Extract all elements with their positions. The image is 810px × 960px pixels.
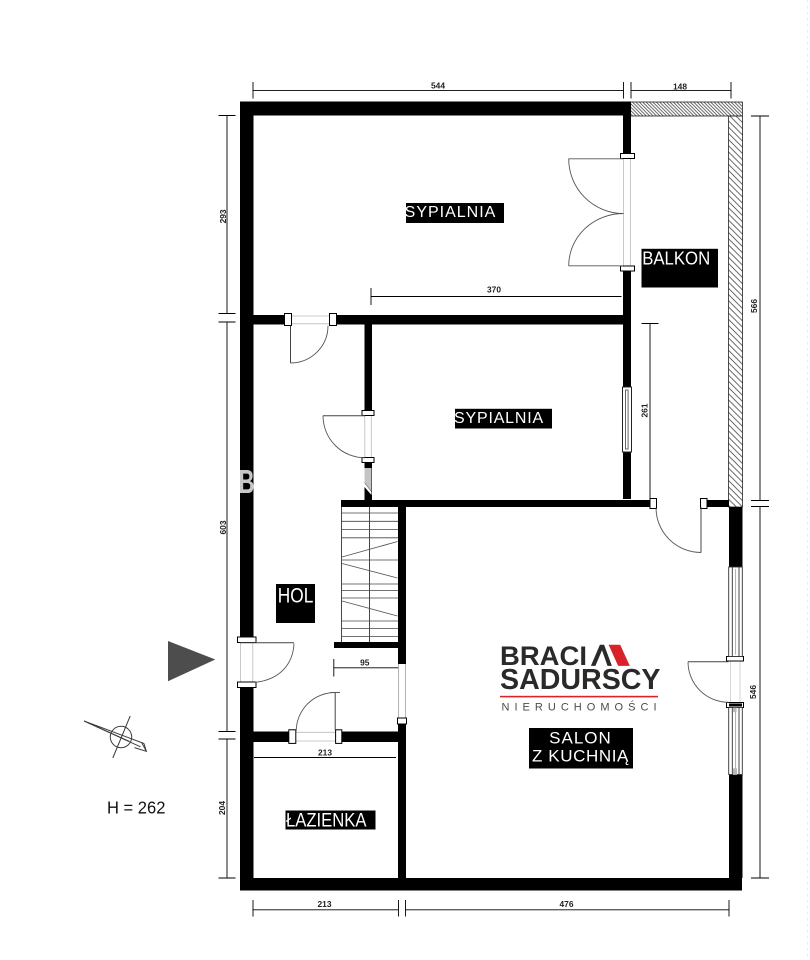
svg-text:546: 546 xyxy=(748,685,758,699)
svg-text:SYPIALNIA: SYPIALNIA xyxy=(405,204,497,221)
svg-text:293: 293 xyxy=(218,209,228,223)
svg-text:NIERUCHOMOŚCI: NIERUCHOMOŚCI xyxy=(502,701,657,714)
svg-text:SYPIALNIA: SYPIALNIA xyxy=(454,410,544,427)
svg-text:ŁAZIENKA: ŁAZIENKA xyxy=(286,810,367,831)
svg-text:261: 261 xyxy=(640,403,650,417)
svg-text:148: 148 xyxy=(673,81,687,91)
svg-text:213: 213 xyxy=(318,899,332,909)
svg-text:204: 204 xyxy=(217,801,227,815)
svg-text:B: B xyxy=(239,463,255,500)
svg-text:603: 603 xyxy=(218,520,228,534)
svg-text:544: 544 xyxy=(431,81,445,91)
svg-text:SADURSCY: SADURSCY xyxy=(500,664,661,696)
svg-text:SALON: SALON xyxy=(549,729,612,748)
svg-text:213: 213 xyxy=(318,747,332,757)
svg-text:BALKON: BALKON xyxy=(642,247,710,268)
svg-text:370: 370 xyxy=(487,284,501,294)
svg-text:H = 262: H = 262 xyxy=(107,797,165,818)
svg-text:95: 95 xyxy=(360,657,370,667)
svg-text:476: 476 xyxy=(560,899,574,909)
svg-text:HOL: HOL xyxy=(278,584,314,607)
svg-text:566: 566 xyxy=(749,299,759,313)
svg-text:Z KUCHNIĄ: Z KUCHNIĄ xyxy=(532,747,629,766)
